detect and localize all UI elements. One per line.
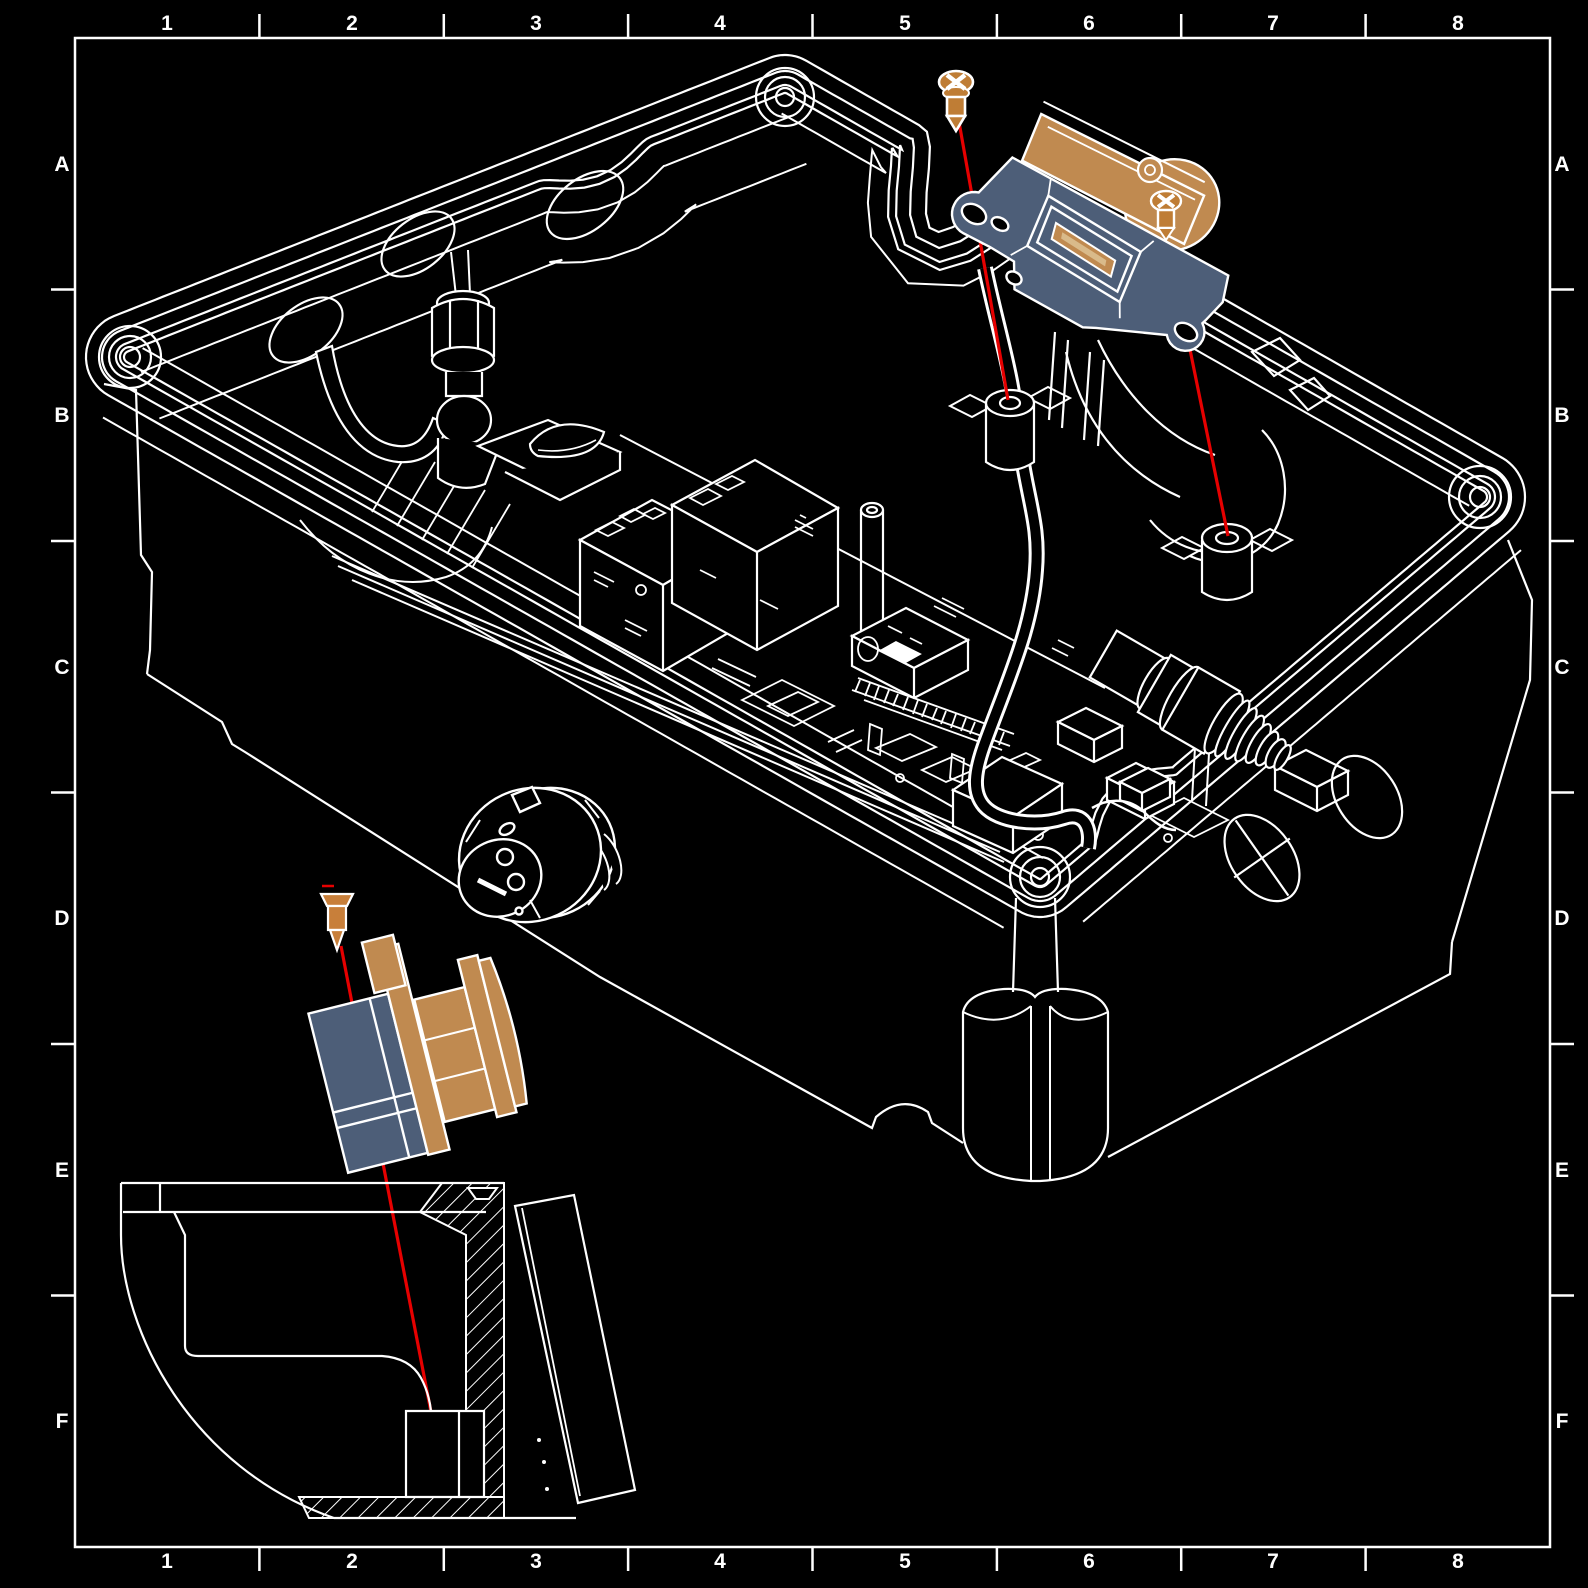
svg-text:D: D: [54, 907, 69, 930]
svg-text:4: 4: [714, 12, 726, 35]
svg-text:2: 2: [346, 1550, 358, 1573]
svg-text:A: A: [1554, 153, 1569, 176]
svg-text:D: D: [1554, 907, 1569, 930]
svg-text:F: F: [56, 1410, 69, 1433]
svg-text:7: 7: [1267, 12, 1279, 35]
svg-text:8: 8: [1452, 1550, 1464, 1573]
svg-text:1: 1: [161, 12, 173, 35]
svg-text:6: 6: [1083, 12, 1095, 35]
svg-text:C: C: [1554, 656, 1569, 679]
svg-text:F: F: [1556, 1410, 1569, 1433]
svg-text:E: E: [1555, 1159, 1569, 1182]
svg-text:5: 5: [899, 1550, 911, 1573]
svg-text:1: 1: [161, 1550, 173, 1573]
svg-text:B: B: [54, 404, 69, 427]
svg-text:6: 6: [1083, 1550, 1095, 1573]
svg-text:E: E: [55, 1159, 69, 1182]
svg-text:C: C: [54, 656, 69, 679]
svg-text:3: 3: [530, 12, 542, 35]
svg-text:5: 5: [899, 12, 911, 35]
svg-text:B: B: [1554, 404, 1569, 427]
svg-text:7: 7: [1267, 1550, 1279, 1573]
svg-text:4: 4: [714, 1550, 726, 1573]
svg-text:3: 3: [530, 1550, 542, 1573]
svg-text:A: A: [54, 153, 69, 176]
svg-text:2: 2: [346, 12, 358, 35]
svg-text:8: 8: [1452, 12, 1464, 35]
